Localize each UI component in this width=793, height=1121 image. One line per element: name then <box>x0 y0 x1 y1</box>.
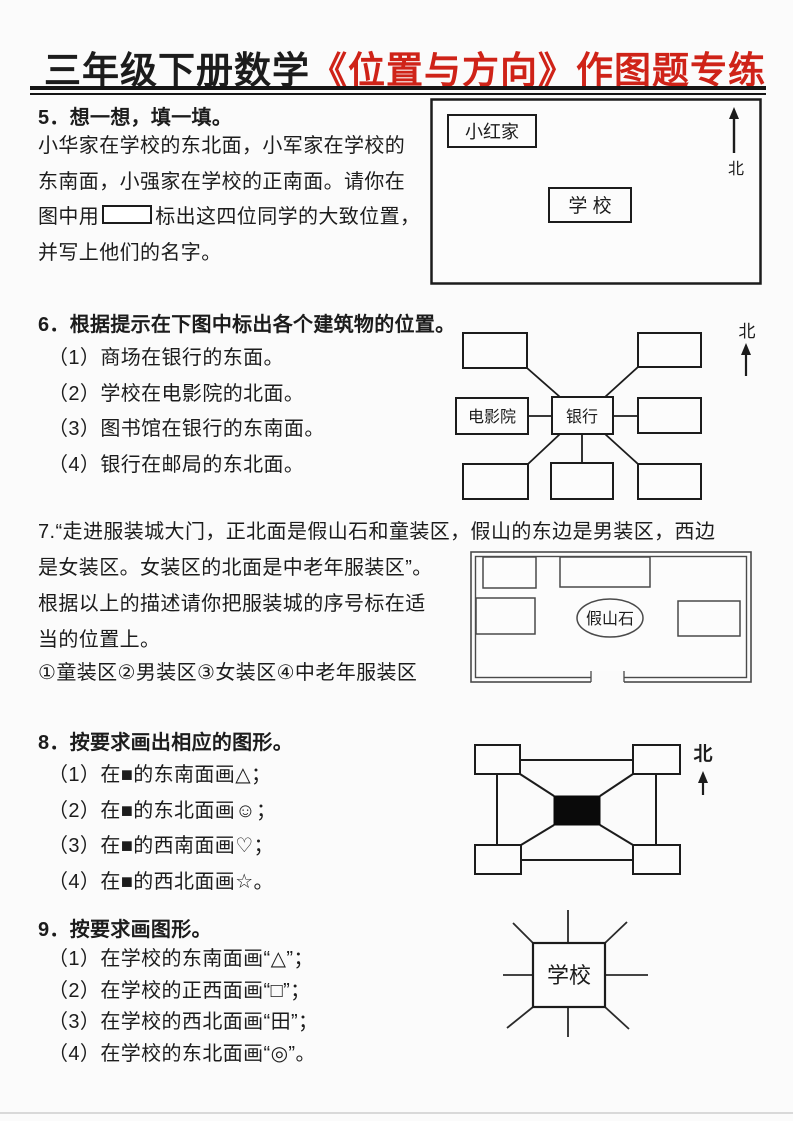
q7-line1: 7.“走进服装城大门，正北面是假山石和童装区，假山的东边是男装区，西边 <box>38 515 715 544</box>
q6-item-4: （4）银行在邮局的东北面。 <box>48 448 325 484</box>
q7-line3: 根据以上的描述请你把服装城的序号标在适 <box>38 587 426 616</box>
q7-rockery-label: 假山石 <box>586 610 634 628</box>
q8-north-label: 北 <box>693 743 712 765</box>
q6-diagram: 电影院 银行 北 <box>455 315 765 510</box>
q5-line2: 东南面，小强家在学校的正南面。请你在 <box>38 165 420 201</box>
q6-box-bottom-left <box>463 464 528 499</box>
q8-item-2: （2）在■的东北面画☺； <box>48 794 276 830</box>
q5-home-label: 小红家 <box>465 122 519 142</box>
q8-heading: 8．按要求画出相应的图形。 <box>38 726 293 755</box>
q5-line3: 图中用标出这四位同学的大致位置， <box>38 200 420 236</box>
q6-box-top-left <box>463 333 527 368</box>
title-underline <box>30 86 766 95</box>
q6-item-3: （3）图书馆在银行的东南面。 <box>48 412 325 448</box>
q8-items: （1）在■的东南面画△； （2）在■的东北面画☺； （3）在■的西南面画♡； （… <box>48 758 276 900</box>
q6-box-bottom-center <box>551 463 613 499</box>
q6-box-top-right <box>638 333 701 367</box>
q5-school-label: 学 校 <box>568 195 611 217</box>
q6-heading: 6．根据提示在下图中标出各个建筑物的位置。 <box>38 308 455 337</box>
q8-diagram: 北 <box>465 735 725 885</box>
q6-item-2: （2）学校在电影院的北面。 <box>48 377 325 413</box>
q8-item-3: （3）在■的西南面画♡； <box>48 829 276 865</box>
q5-line3-after: 标出这四位同学的大致位置， <box>155 206 420 228</box>
q8-box-top-right <box>633 745 680 774</box>
q9-item-1: （1）在学校的东南面画“△”； <box>48 944 318 976</box>
q5-line1: 小华家在学校的东北面，小军家在学校的 <box>38 129 420 165</box>
q5-heading: 5．想一想，填一填。 <box>38 101 232 130</box>
q5-line3-before: 图中用 <box>38 206 99 228</box>
q8-box-bottom-left <box>475 845 521 874</box>
worksheet-page: 三年级下册数学《位置与方向》作图题专练 5．想一想，填一填。 小华家在学校的东北… <box>0 0 793 1121</box>
q8-item-1: （1）在■的东南面画△； <box>48 758 276 794</box>
q7-diagram: 假山石 <box>470 551 752 683</box>
q8-item-4: （4）在■的西北面画☆。 <box>48 865 276 901</box>
q7-room-top-left <box>483 557 536 588</box>
q6-bank-label: 银行 <box>566 408 598 426</box>
q7-entrance-gap <box>591 671 624 683</box>
q7-room-top-center <box>560 557 650 587</box>
title-red-part: 《位置与方向》作图题专练 <box>310 50 766 91</box>
q5-diagram: 小红家 学 校 北 <box>430 98 762 285</box>
q8-north-arrow-icon <box>698 771 708 795</box>
q6-north-arrow-icon <box>741 343 751 376</box>
q9-item-3: （3）在学校的西北面画“田”； <box>48 1007 318 1039</box>
q6-item-1: （1）商场在银行的东面。 <box>48 341 325 377</box>
q5-body: 小华家在学校的东北面，小军家在学校的 东南面，小强家在学校的正南面。请你在 图中… <box>38 129 420 271</box>
q6-cinema-label: 电影院 <box>468 408 516 426</box>
q6-box-bottom-right <box>638 464 701 499</box>
q5-north-label: 北 <box>728 160 744 178</box>
page-bottom-edge <box>0 1112 793 1114</box>
q5-line4: 并写上他们的名字。 <box>38 236 420 272</box>
q9-items: （1）在学校的东南面画“△”； （2）在学校的正西面画“□”； （3）在学校的西… <box>48 944 318 1070</box>
q9-diagram: 学校 <box>495 905 665 1045</box>
q9-heading: 9．按要求画图形。 <box>38 913 212 942</box>
q9-school-label: 学校 <box>547 963 591 988</box>
q9-item-2: （2）在学校的正西面画“□”； <box>48 976 318 1008</box>
q6-box-right <box>638 398 701 433</box>
q6-items: （1）商场在银行的东面。 （2）学校在电影院的北面。 （3）图书馆在银行的东南面… <box>48 341 325 483</box>
q7-room-left <box>476 598 535 634</box>
q8-box-top-left <box>475 745 520 774</box>
q8-box-bottom-right <box>633 845 680 874</box>
q7-room-right <box>678 601 740 636</box>
q8-center-black-box <box>554 796 600 825</box>
title-black-part: 三年级下册数学 <box>44 50 310 91</box>
q7-line4: 当的位置上。 <box>38 623 160 652</box>
q9-item-4: （4）在学校的东北面画“◎”。 <box>48 1039 318 1071</box>
q6-north-label: 北 <box>739 322 756 341</box>
q7-line5: ①童装区②男装区③女装区④中老年服装区 <box>38 656 417 685</box>
blank-box-symbol <box>102 205 152 224</box>
q7-line2: 是女装区。女装区的北面是中老年服装区”。 <box>38 551 433 580</box>
